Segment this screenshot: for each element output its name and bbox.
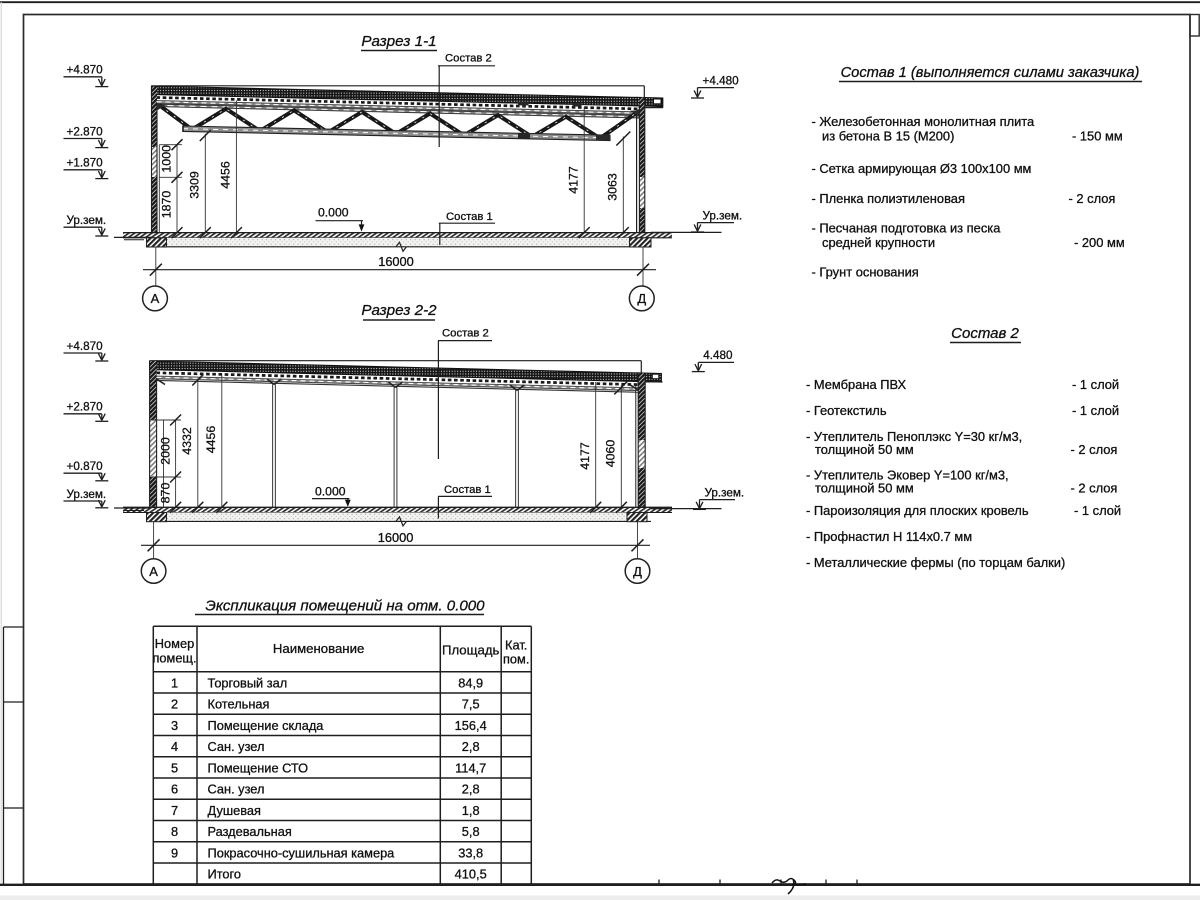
svg-text:1000: 1000 <box>159 145 173 173</box>
svg-text:4177: 4177 <box>578 442 592 470</box>
svg-text:4060: 4060 <box>604 440 618 468</box>
svg-text:Д: Д <box>633 564 642 579</box>
svg-text:410,5: 410,5 <box>455 867 487 882</box>
svg-text:- 1 слой: - 1 слой <box>1072 377 1119 392</box>
svg-text:2000: 2000 <box>158 437 172 465</box>
svg-text:Площадь: Площадь <box>442 643 500 658</box>
svg-text:16000: 16000 <box>378 254 414 269</box>
svg-text:9: 9 <box>171 845 178 860</box>
svg-text:Ур.зем.: Ур.зем. <box>703 209 743 222</box>
svg-text:А: А <box>151 291 160 306</box>
svg-text:0.000: 0.000 <box>315 484 346 498</box>
svg-text:6: 6 <box>171 782 178 797</box>
svg-text:Сан. узел: Сан. узел <box>208 782 265 797</box>
svg-text:- Геотекстиль: - Геотекстиль <box>806 403 887 418</box>
svg-text:114,7: 114,7 <box>455 760 486 775</box>
svg-text:- Пароизоляция для плоских кро: - Пароизоляция для плоских кровель <box>806 503 1029 518</box>
svg-text:Торговый зал: Торговый зал <box>208 675 288 690</box>
svg-text:- Профнастил Н 114х0.7 мм: - Профнастил Н 114х0.7 мм <box>806 529 972 544</box>
svg-text:8: 8 <box>171 824 178 839</box>
svg-text:Итого: Итого <box>208 867 242 882</box>
svg-text:Раздевальная: Раздевальная <box>208 824 292 839</box>
svg-text:Ур.зем.: Ур.зем. <box>705 486 745 499</box>
svg-text:+4.480: +4.480 <box>703 74 740 87</box>
svg-text:Помещение СТО: Помещение СТО <box>208 760 309 775</box>
svg-text:Наименование: Наименование <box>273 641 364 656</box>
svg-text:- 2 слоя: - 2 слоя <box>1071 442 1118 457</box>
svg-text:2,8: 2,8 <box>462 739 480 754</box>
svg-text:+4.870: +4.870 <box>67 340 104 353</box>
svg-text:Душевая: Душевая <box>208 803 262 818</box>
svg-text:+1.870: +1.870 <box>67 157 104 170</box>
svg-text:16000: 16000 <box>378 530 414 545</box>
svg-text:Номер: Номер <box>155 636 194 651</box>
svg-text:- Песчаная подготовка из песка: - Песчаная подготовка из песка <box>812 221 1002 236</box>
svg-text:- Металлические фермы (по торц: - Металлические фермы (по торцам балки) <box>806 555 1065 570</box>
svg-text:толщиной 50 мм: толщиной 50 мм <box>815 442 914 457</box>
svg-text:2,8: 2,8 <box>462 782 480 797</box>
svg-text:А: А <box>149 564 158 579</box>
svg-text:3: 3 <box>171 718 178 733</box>
svg-text:Состав 2: Состав 2 <box>442 328 489 340</box>
svg-text:+2.870: +2.870 <box>67 125 104 138</box>
svg-text:1,8: 1,8 <box>462 803 480 818</box>
svg-text:33,8: 33,8 <box>458 845 483 860</box>
svg-text:7,5: 7,5 <box>462 697 480 712</box>
svg-text:- 1 слой: - 1 слой <box>1072 403 1119 418</box>
svg-text:- Грунт основания: - Грунт основания <box>812 265 919 280</box>
svg-text:- 200 мм: - 200 мм <box>1074 235 1125 250</box>
svg-text:средней крупности: средней крупности <box>822 235 935 250</box>
svg-text:Д: Д <box>637 291 646 306</box>
svg-text:Помещение склада: Помещение склада <box>208 718 325 733</box>
svg-text:Состав 2: Состав 2 <box>445 53 492 65</box>
svg-text:Экспликация помещений на отм.: Экспликация помещений на отм. 0.000 <box>205 598 485 615</box>
svg-text:Котельная: Котельная <box>208 697 270 712</box>
svg-text:1: 1 <box>171 675 178 690</box>
svg-text:- Мембрана ПВХ: - Мембрана ПВХ <box>806 377 907 392</box>
svg-text:7: 7 <box>171 803 178 818</box>
svg-text:Состав 1 (выполняется силами з: Состав 1 (выполняется силами заказчика) <box>841 65 1140 81</box>
svg-text:870: 870 <box>158 483 172 504</box>
svg-text:4456: 4456 <box>219 161 233 189</box>
svg-text:Ур.зем.: Ур.зем. <box>67 214 107 227</box>
svg-text:+0.870: +0.870 <box>67 460 104 473</box>
svg-text:Покрасочно-сушильная камера: Покрасочно-сушильная камера <box>208 845 396 860</box>
svg-text:- 1 слой: - 1 слой <box>1074 503 1121 518</box>
svg-text:2: 2 <box>171 697 178 712</box>
svg-text:1870: 1870 <box>159 191 173 219</box>
svg-text:5,8: 5,8 <box>462 824 480 839</box>
svg-text:+2.870: +2.870 <box>67 401 104 414</box>
svg-text:4332: 4332 <box>180 427 194 455</box>
svg-text:Разрез 2-2: Разрез 2-2 <box>361 302 437 319</box>
svg-text:Ур.зем.: Ур.зем. <box>67 488 107 501</box>
svg-text:помещ.: помещ. <box>152 651 196 666</box>
svg-text:+4.870: +4.870 <box>67 64 104 77</box>
svg-text:Состав 1: Состав 1 <box>446 211 493 223</box>
svg-text:- Железобетонная монолитная п: - Железобетонная монолитная плита <box>812 114 1036 129</box>
svg-text:- 2 слоя: - 2 слоя <box>1071 481 1118 496</box>
svg-text:84,9: 84,9 <box>458 675 483 690</box>
svg-text:3309: 3309 <box>188 171 202 199</box>
svg-text:5: 5 <box>171 760 178 775</box>
svg-text:4: 4 <box>171 739 178 754</box>
svg-text:- Сетка армирующая Ø3 100х100: - Сетка армирующая Ø3 100х100 мм <box>812 161 1032 176</box>
svg-text:0.000: 0.000 <box>318 206 349 220</box>
svg-text:Кат.: Кат. <box>505 638 527 653</box>
svg-text:Состав 1: Состав 1 <box>444 484 491 496</box>
svg-text:156,4: 156,4 <box>455 718 487 733</box>
svg-text:4.480: 4.480 <box>703 349 733 362</box>
svg-text:- 2 слоя: - 2 слоя <box>1069 191 1116 206</box>
svg-text:Разрез 1-1: Разрез 1-1 <box>361 33 436 50</box>
svg-text:4456: 4456 <box>204 426 218 454</box>
svg-text:из бетона В 15 (М200): из бетона В 15 (М200) <box>822 129 954 144</box>
svg-text:- Пленка полиэтиленовая: - Пленка полиэтиленовая <box>812 191 965 206</box>
svg-text:4177: 4177 <box>567 166 581 194</box>
svg-text:- 150 мм: - 150 мм <box>1072 129 1123 144</box>
svg-text:3063: 3063 <box>606 173 620 201</box>
svg-text:Сан. узел: Сан. узел <box>208 739 265 754</box>
svg-text:Состав 2: Состав 2 <box>951 325 1019 342</box>
svg-text:толщиной 50 мм: толщиной 50 мм <box>815 481 914 496</box>
svg-text:пом.: пом. <box>503 652 529 667</box>
